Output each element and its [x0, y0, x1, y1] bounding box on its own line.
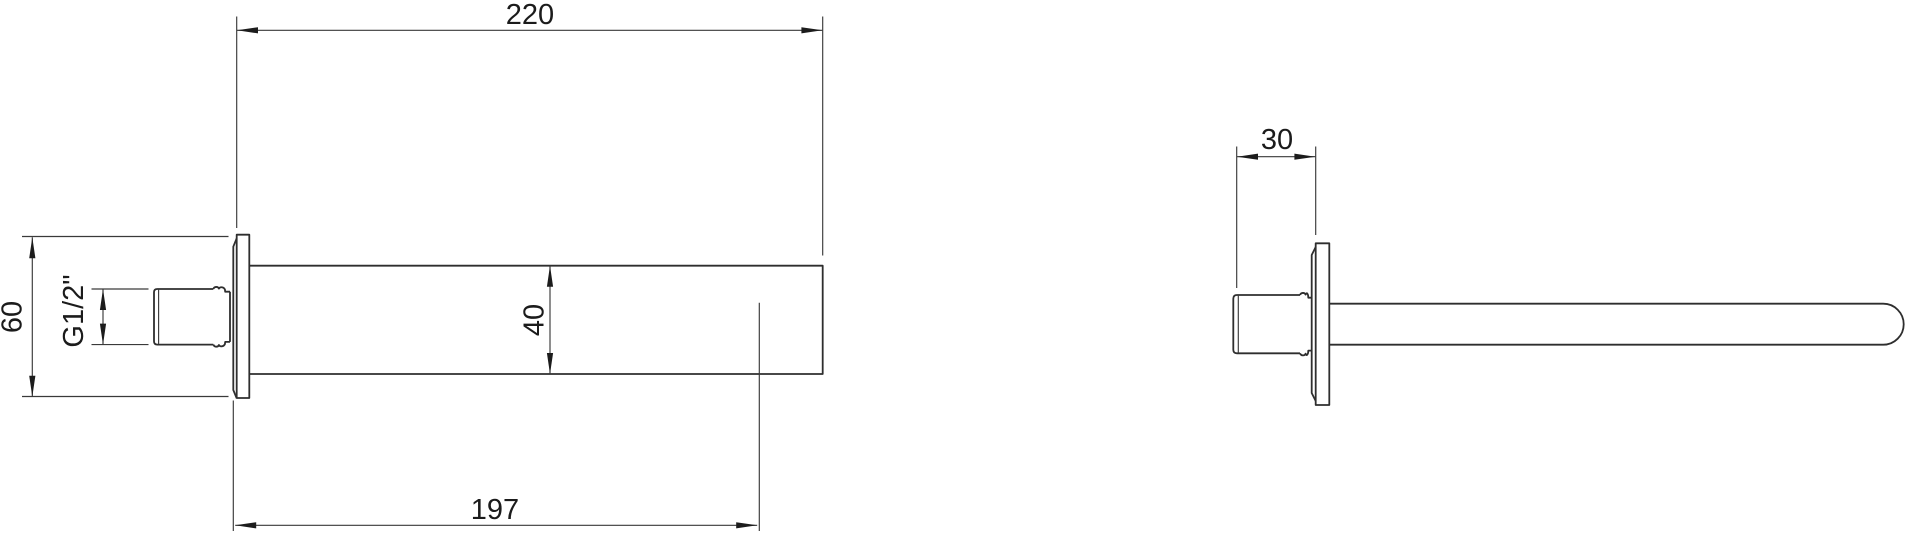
top-view: 30	[1233, 124, 1903, 405]
top-view-thread-body	[1233, 295, 1300, 353]
dim-label-total-length: 220	[506, 0, 554, 31]
side-view: 220 60 G1/2"	[0, 0, 823, 531]
side-view-thread-collar	[213, 287, 230, 347]
arrowhead-right	[801, 27, 822, 33]
dimension-plate-height: 60	[0, 237, 229, 397]
arrowhead-right	[736, 522, 757, 528]
spout-dimension-drawing: 220 60 G1/2"	[0, 0, 1920, 537]
arrowhead-up	[100, 289, 106, 310]
arrowhead-up	[547, 266, 553, 287]
arrowhead-down	[29, 376, 35, 397]
arrowhead-left	[235, 522, 256, 528]
side-view-thread-body	[154, 289, 213, 345]
dim-label-spout-height: 40	[519, 304, 551, 336]
dimension-total-length: 220	[237, 0, 823, 256]
arrowhead-left	[1237, 154, 1258, 160]
arrowhead-down	[100, 324, 106, 345]
dim-label-outlet-projection: 197	[471, 494, 519, 526]
dimension-spout-height: 40	[519, 266, 554, 374]
top-view-spout-tube	[1329, 304, 1903, 345]
dim-label-thread-size: G1/2"	[58, 274, 90, 347]
arrowhead-down	[547, 353, 553, 374]
dim-label-plate-height: 60	[0, 301, 29, 333]
arrowhead-left	[237, 27, 258, 33]
top-view-thread-collar	[1300, 293, 1312, 355]
dim-label-thread-depth: 30	[1261, 124, 1293, 156]
top-view-flange-plate	[1316, 243, 1330, 405]
dimension-thread-depth: 30	[1237, 124, 1316, 288]
arrowhead-up	[29, 237, 35, 258]
side-view-flange-plate	[237, 235, 250, 398]
arrowhead-right	[1294, 154, 1315, 160]
dimension-outlet-projection: 197	[233, 303, 759, 531]
dimension-thread-size: G1/2"	[58, 274, 149, 347]
technical-drawing-canvas: 220 60 G1/2"	[0, 0, 1920, 537]
